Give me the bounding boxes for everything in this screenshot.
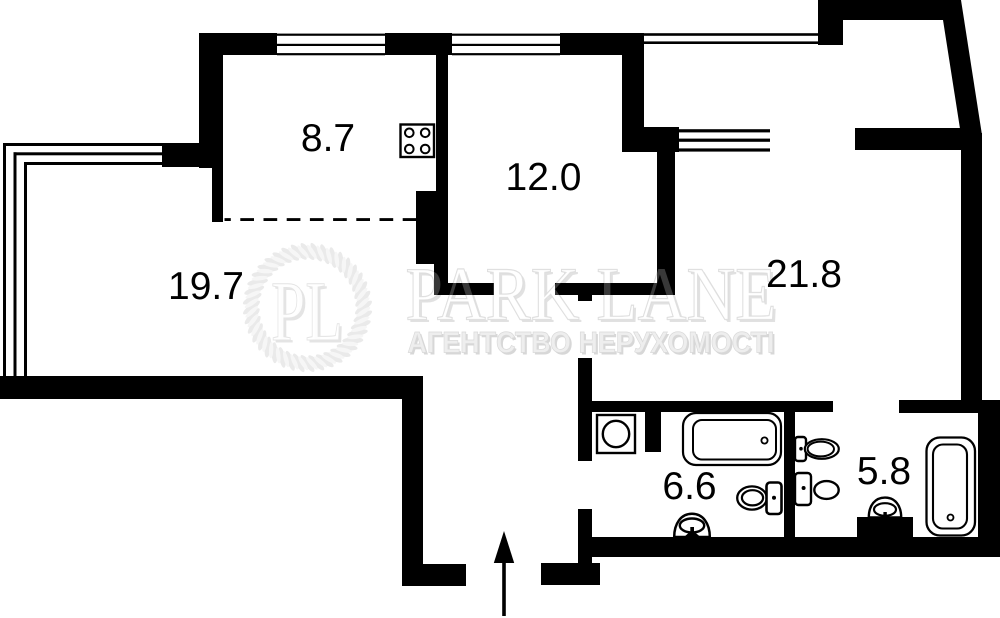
- svg-text:PARK LANE: PARK LANE: [406, 253, 777, 337]
- svg-text:5.8: 5.8: [857, 450, 911, 493]
- svg-text:12.0: 12.0: [506, 156, 582, 199]
- svg-text:21.8: 21.8: [766, 253, 842, 296]
- svg-text:PL: PL: [271, 263, 343, 359]
- svg-text:8.7: 8.7: [301, 117, 355, 160]
- svg-text:6.6: 6.6: [662, 465, 716, 508]
- svg-text:19.7: 19.7: [168, 265, 244, 308]
